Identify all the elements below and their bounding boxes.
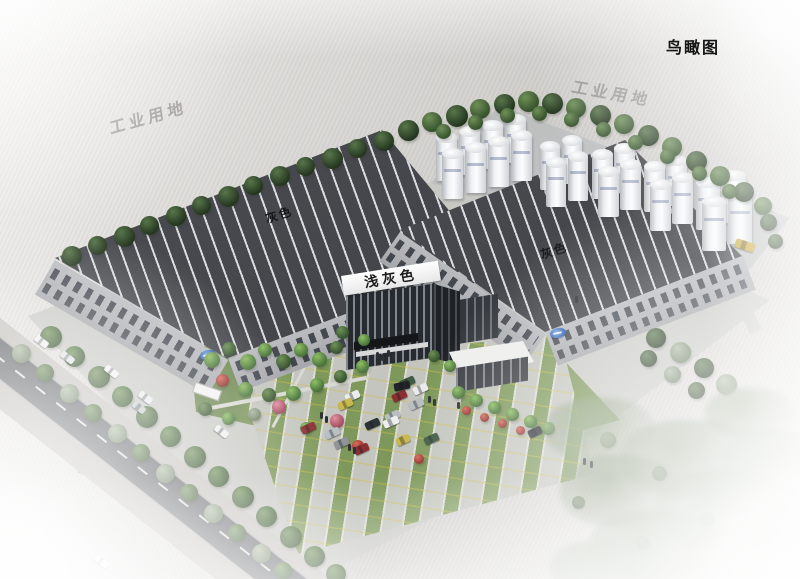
person <box>590 461 593 468</box>
person <box>325 416 328 423</box>
tree <box>256 506 277 527</box>
tree <box>62 246 82 266</box>
tree <box>238 382 253 397</box>
tree <box>262 388 276 402</box>
tree <box>356 360 369 373</box>
tree <box>244 176 263 195</box>
tree <box>312 352 327 367</box>
tree <box>248 408 261 421</box>
tree <box>452 386 465 399</box>
office-building-facade <box>346 284 434 370</box>
tree <box>156 464 175 483</box>
tree <box>414 454 424 464</box>
tree <box>166 206 186 226</box>
tree <box>734 182 754 202</box>
tree <box>754 197 772 215</box>
tree <box>88 236 107 255</box>
tree <box>670 342 691 363</box>
tree <box>446 105 468 127</box>
storage-tank <box>568 156 588 201</box>
tree <box>506 408 519 421</box>
tree <box>488 401 501 414</box>
tree <box>398 120 419 141</box>
tree <box>252 544 271 563</box>
tree <box>462 406 471 415</box>
tree <box>294 343 308 357</box>
tree <box>216 374 229 387</box>
tree <box>276 354 291 369</box>
tree <box>296 157 315 176</box>
storage-tank <box>702 201 726 251</box>
tree <box>160 426 181 447</box>
storage-tank <box>511 135 532 181</box>
tree <box>468 115 483 130</box>
tree <box>336 326 349 339</box>
tree <box>180 484 198 502</box>
roof-color-label-right: 灰色 <box>538 238 570 263</box>
tree <box>692 166 707 181</box>
storage-tank <box>488 141 509 187</box>
person <box>353 447 356 454</box>
office-wing <box>458 294 498 344</box>
tree <box>498 419 507 428</box>
tree <box>208 466 229 487</box>
tree <box>310 378 324 392</box>
tree <box>710 166 730 186</box>
tree <box>694 358 714 378</box>
tree <box>500 108 515 123</box>
tree <box>326 564 346 579</box>
tree <box>358 334 370 346</box>
tree <box>532 106 547 121</box>
person <box>575 296 578 303</box>
tree <box>132 444 150 462</box>
tree <box>286 386 301 401</box>
tree <box>228 524 246 542</box>
storage-tank <box>442 153 463 199</box>
tree <box>330 341 343 354</box>
tree <box>304 546 325 567</box>
tree <box>192 196 211 215</box>
tree <box>470 394 483 407</box>
tree <box>348 139 367 158</box>
tree <box>274 562 292 579</box>
tree <box>280 526 302 548</box>
person <box>457 402 460 409</box>
tree <box>660 149 675 164</box>
tree <box>198 402 212 416</box>
tree <box>480 413 489 422</box>
roof-color-label-left: 灰色 <box>263 202 295 227</box>
storage-tank <box>465 147 486 193</box>
scene: 工业用地 工业用地 工业用地 灰色 灰色 浅灰色 浅灰色 鸟瞰图 <box>0 0 800 579</box>
tree <box>436 124 451 139</box>
person <box>428 396 431 403</box>
person <box>348 444 351 451</box>
person <box>320 412 323 419</box>
storage-tank <box>672 177 693 224</box>
person <box>387 350 390 357</box>
tree <box>112 386 133 407</box>
tree <box>374 131 394 151</box>
tree <box>60 384 79 403</box>
tree <box>108 424 127 443</box>
tree <box>334 370 347 383</box>
tree <box>114 226 135 247</box>
person <box>381 354 384 361</box>
forest-canopy <box>720 430 800 496</box>
tree <box>722 184 737 199</box>
tree <box>664 366 681 383</box>
tree <box>524 415 537 428</box>
tree <box>628 135 643 150</box>
tree <box>596 122 611 137</box>
storage-tank <box>650 184 671 231</box>
tree <box>204 504 223 523</box>
tree <box>232 486 254 508</box>
tree <box>218 186 239 207</box>
tree <box>428 350 440 362</box>
tree <box>760 214 777 231</box>
storage-tank <box>620 164 641 210</box>
person <box>392 353 395 360</box>
forest-canopy <box>705 388 795 438</box>
person <box>583 458 586 465</box>
tree <box>614 114 634 134</box>
tree <box>688 382 705 399</box>
tree <box>140 216 159 235</box>
tree <box>640 350 657 367</box>
storage-tank <box>546 162 566 207</box>
tree <box>84 404 102 422</box>
tree <box>222 412 235 425</box>
storage-tank <box>598 171 619 217</box>
tree <box>564 112 579 127</box>
tree <box>184 446 206 468</box>
tree <box>516 426 525 435</box>
tree <box>768 234 783 249</box>
tree <box>272 400 286 414</box>
tree <box>444 360 456 372</box>
tree <box>270 166 290 186</box>
person <box>376 352 379 359</box>
page-title: 鸟瞰图 <box>666 34 720 58</box>
tree <box>222 342 236 356</box>
tree <box>646 328 666 348</box>
tree <box>204 352 220 368</box>
tree <box>240 354 256 370</box>
tree <box>12 344 31 363</box>
tree <box>258 343 272 357</box>
person <box>433 399 436 406</box>
tree <box>322 148 343 169</box>
tree <box>36 364 54 382</box>
